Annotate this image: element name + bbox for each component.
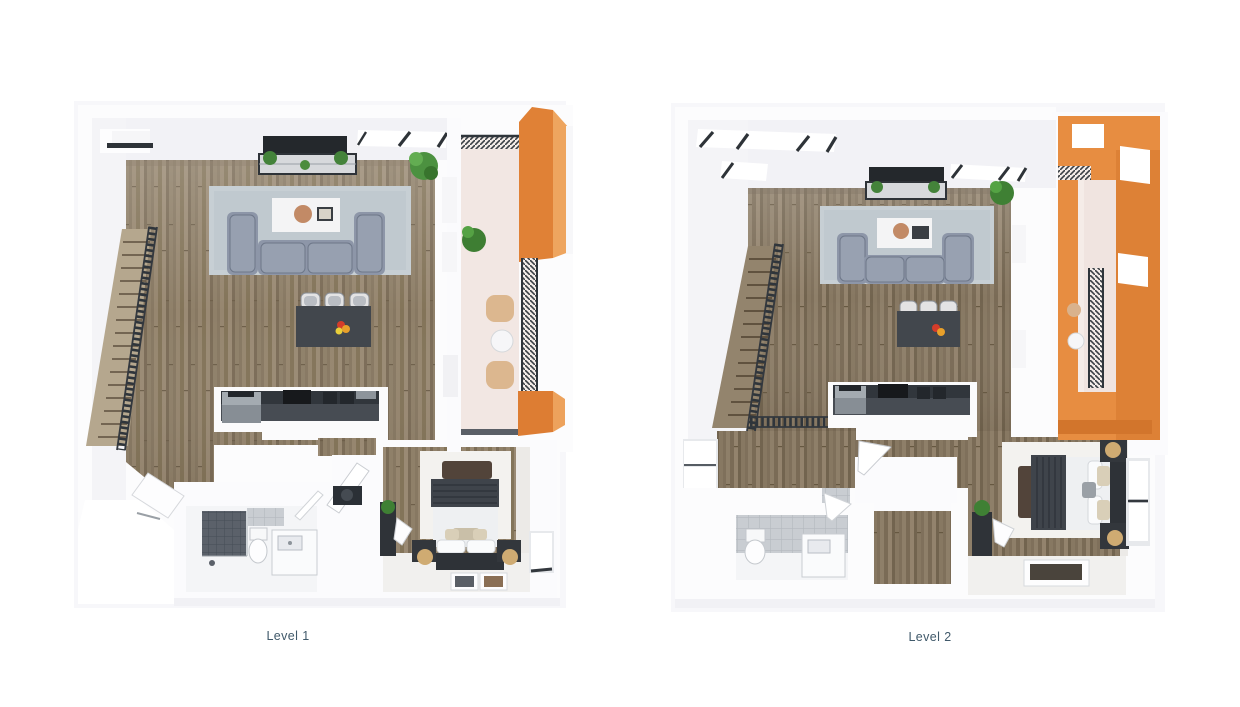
svg-text:Level 2: Level 2 [908,630,951,644]
svg-text:Level 1: Level 1 [266,629,309,643]
